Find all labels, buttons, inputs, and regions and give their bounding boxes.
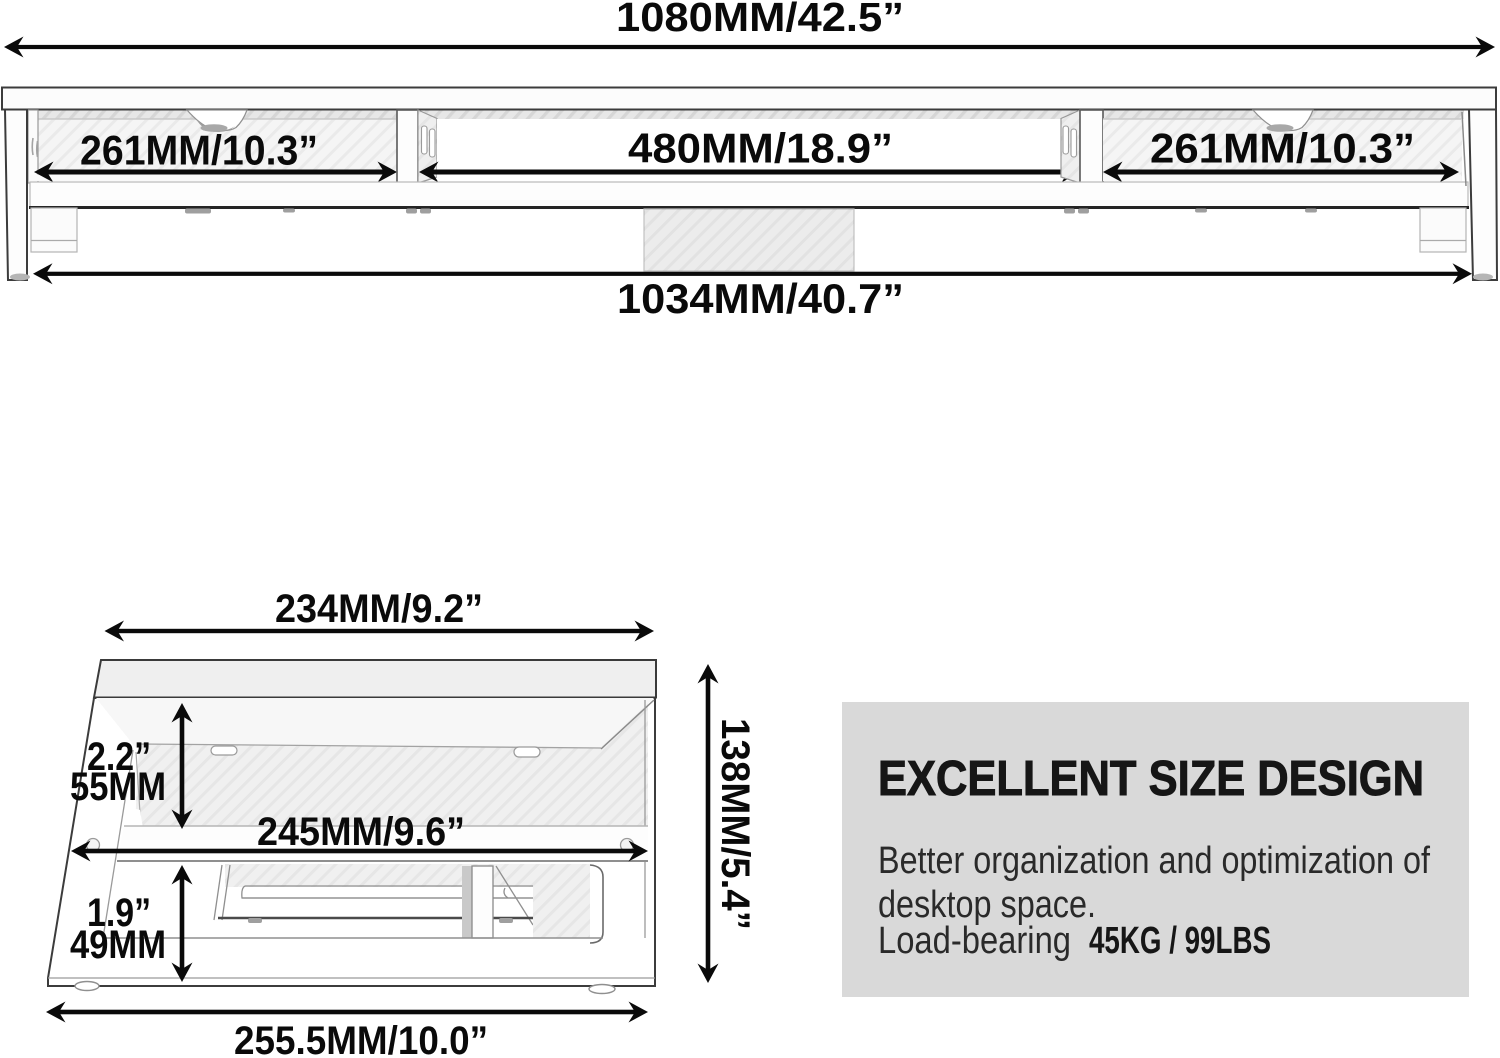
svg-text:EXCELLENT SIZE DESIGN: EXCELLENT SIZE DESIGN (878, 752, 1424, 806)
svg-text:Load-bearing: Load-bearing (878, 920, 1071, 962)
svg-text:1034MM/40.7”: 1034MM/40.7” (617, 275, 904, 322)
svg-text:Better organization and optimi: Better organization and optimization of (878, 840, 1430, 882)
svg-text:55MM: 55MM (70, 765, 166, 809)
svg-text:245MM/9.6”: 245MM/9.6” (257, 810, 465, 854)
svg-text:255.5MM/10.0”: 255.5MM/10.0” (234, 1019, 488, 1058)
svg-text:480MM/18.9”: 480MM/18.9” (628, 125, 893, 172)
svg-text:45KG / 99LBS: 45KG / 99LBS (1089, 920, 1271, 962)
svg-text:261MM/10.3”: 261MM/10.3” (80, 127, 318, 174)
svg-text:1080MM/42.5”: 1080MM/42.5” (616, 0, 904, 40)
svg-text:49MM: 49MM (70, 923, 166, 967)
svg-text:138MM/5.4”: 138MM/5.4” (713, 718, 757, 930)
svg-text:261MM/10.3”: 261MM/10.3” (1150, 125, 1415, 172)
svg-text:234MM/9.2”: 234MM/9.2” (275, 587, 483, 631)
